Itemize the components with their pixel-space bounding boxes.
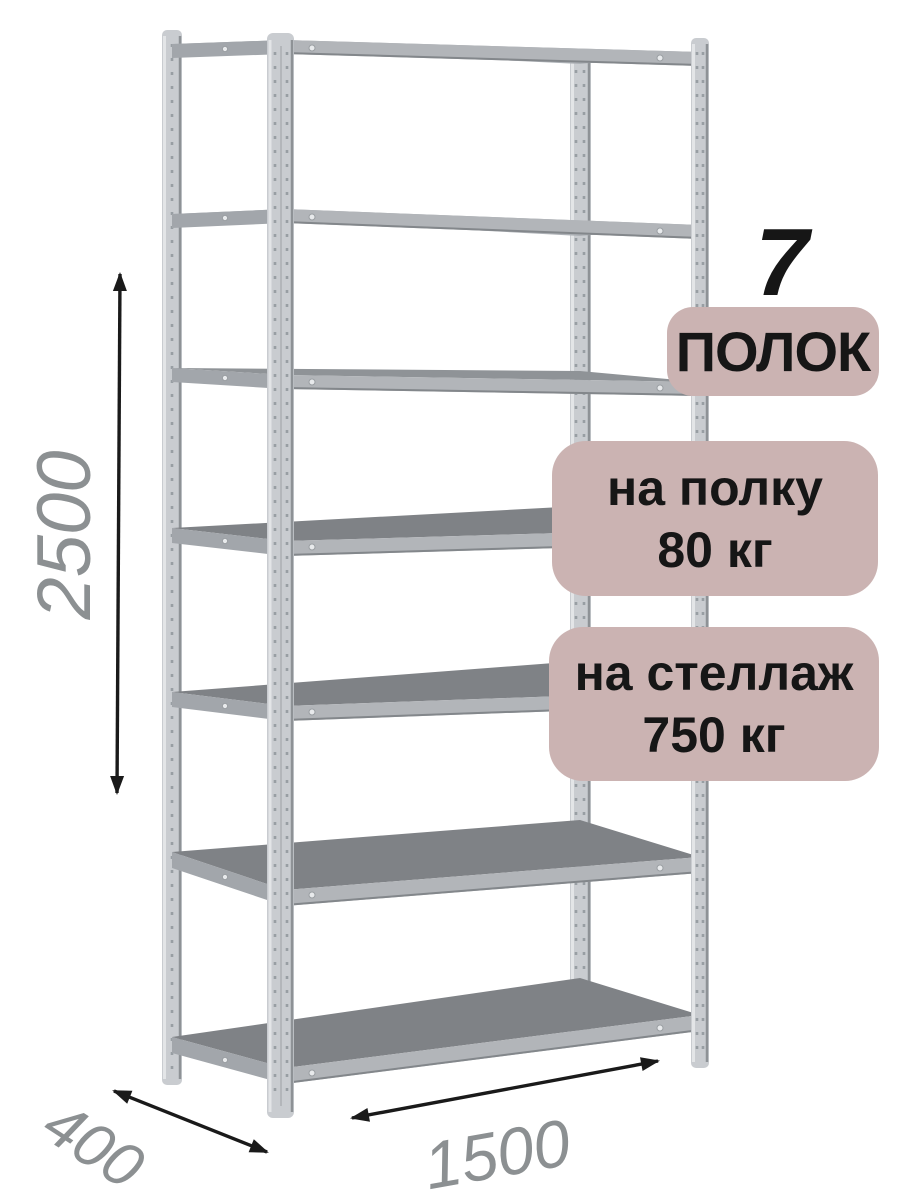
- shelf-count-label: ПОЛОК: [676, 319, 870, 384]
- per-rack-load-text: на стеллаж: [575, 642, 854, 704]
- shelf-6: [172, 820, 700, 906]
- shelf-count-number: 7: [722, 213, 842, 313]
- height-dimension-label: 2500: [23, 375, 107, 695]
- per-shelf-load-badge: на полку 80 кг: [552, 441, 878, 596]
- per-rack-load-badge: на стеллаж 750 кг: [549, 627, 879, 781]
- shelf-1: [172, 40, 700, 66]
- per-shelf-load-text: на полку: [607, 457, 823, 519]
- shelf-count-badge: ПОЛОК: [667, 307, 879, 396]
- height-dimension-arrow: [117, 274, 120, 793]
- shelving-unit-illustration: [0, 0, 900, 1200]
- per-shelf-load-value: 80 кг: [657, 519, 772, 581]
- product-image: 2500 400 1500 7 ПОЛОК на полку 80 кг на …: [0, 0, 900, 1200]
- front-left-post: [267, 33, 294, 1118]
- per-rack-load-value: 750 кг: [642, 704, 785, 766]
- back-left-post: [162, 30, 182, 1085]
- shelf-2: [172, 209, 700, 239]
- shelf-3: [172, 368, 700, 396]
